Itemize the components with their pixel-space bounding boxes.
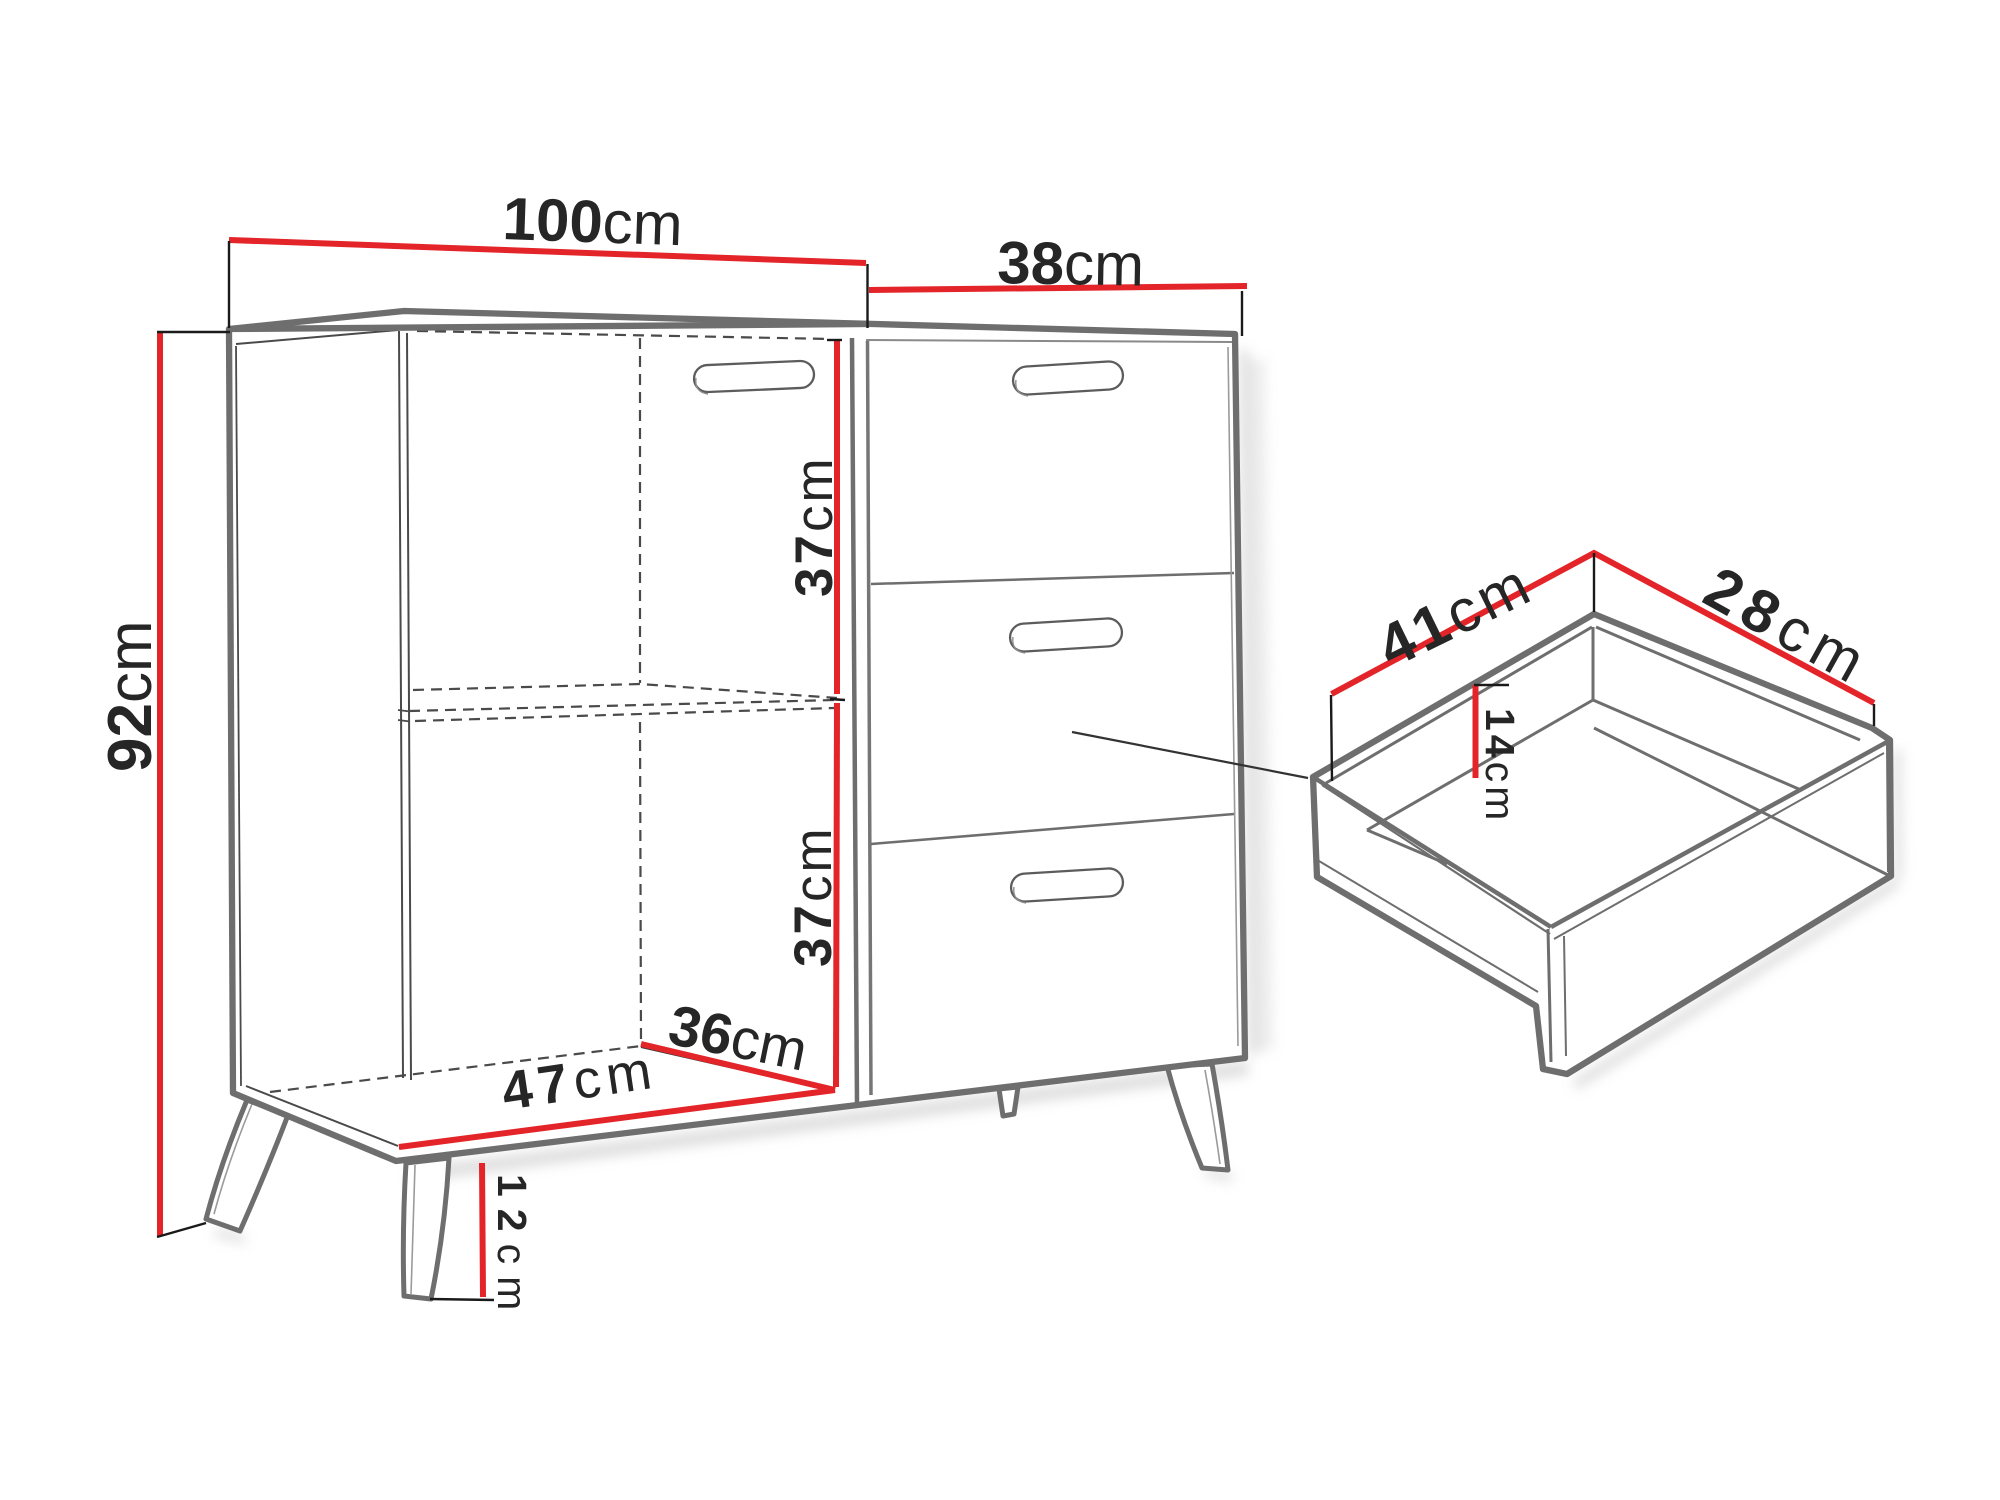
svg-text:92cm: 92cm <box>96 620 165 772</box>
svg-text:100cm: 100cm <box>502 185 684 258</box>
svg-text:37cm: 37cm <box>784 825 843 967</box>
svg-text:12cm: 12cm <box>489 1174 535 1322</box>
svg-text:37cm: 37cm <box>785 455 844 597</box>
svg-text:14cm: 14cm <box>1477 708 1523 824</box>
svg-text:38cm: 38cm <box>997 229 1145 299</box>
